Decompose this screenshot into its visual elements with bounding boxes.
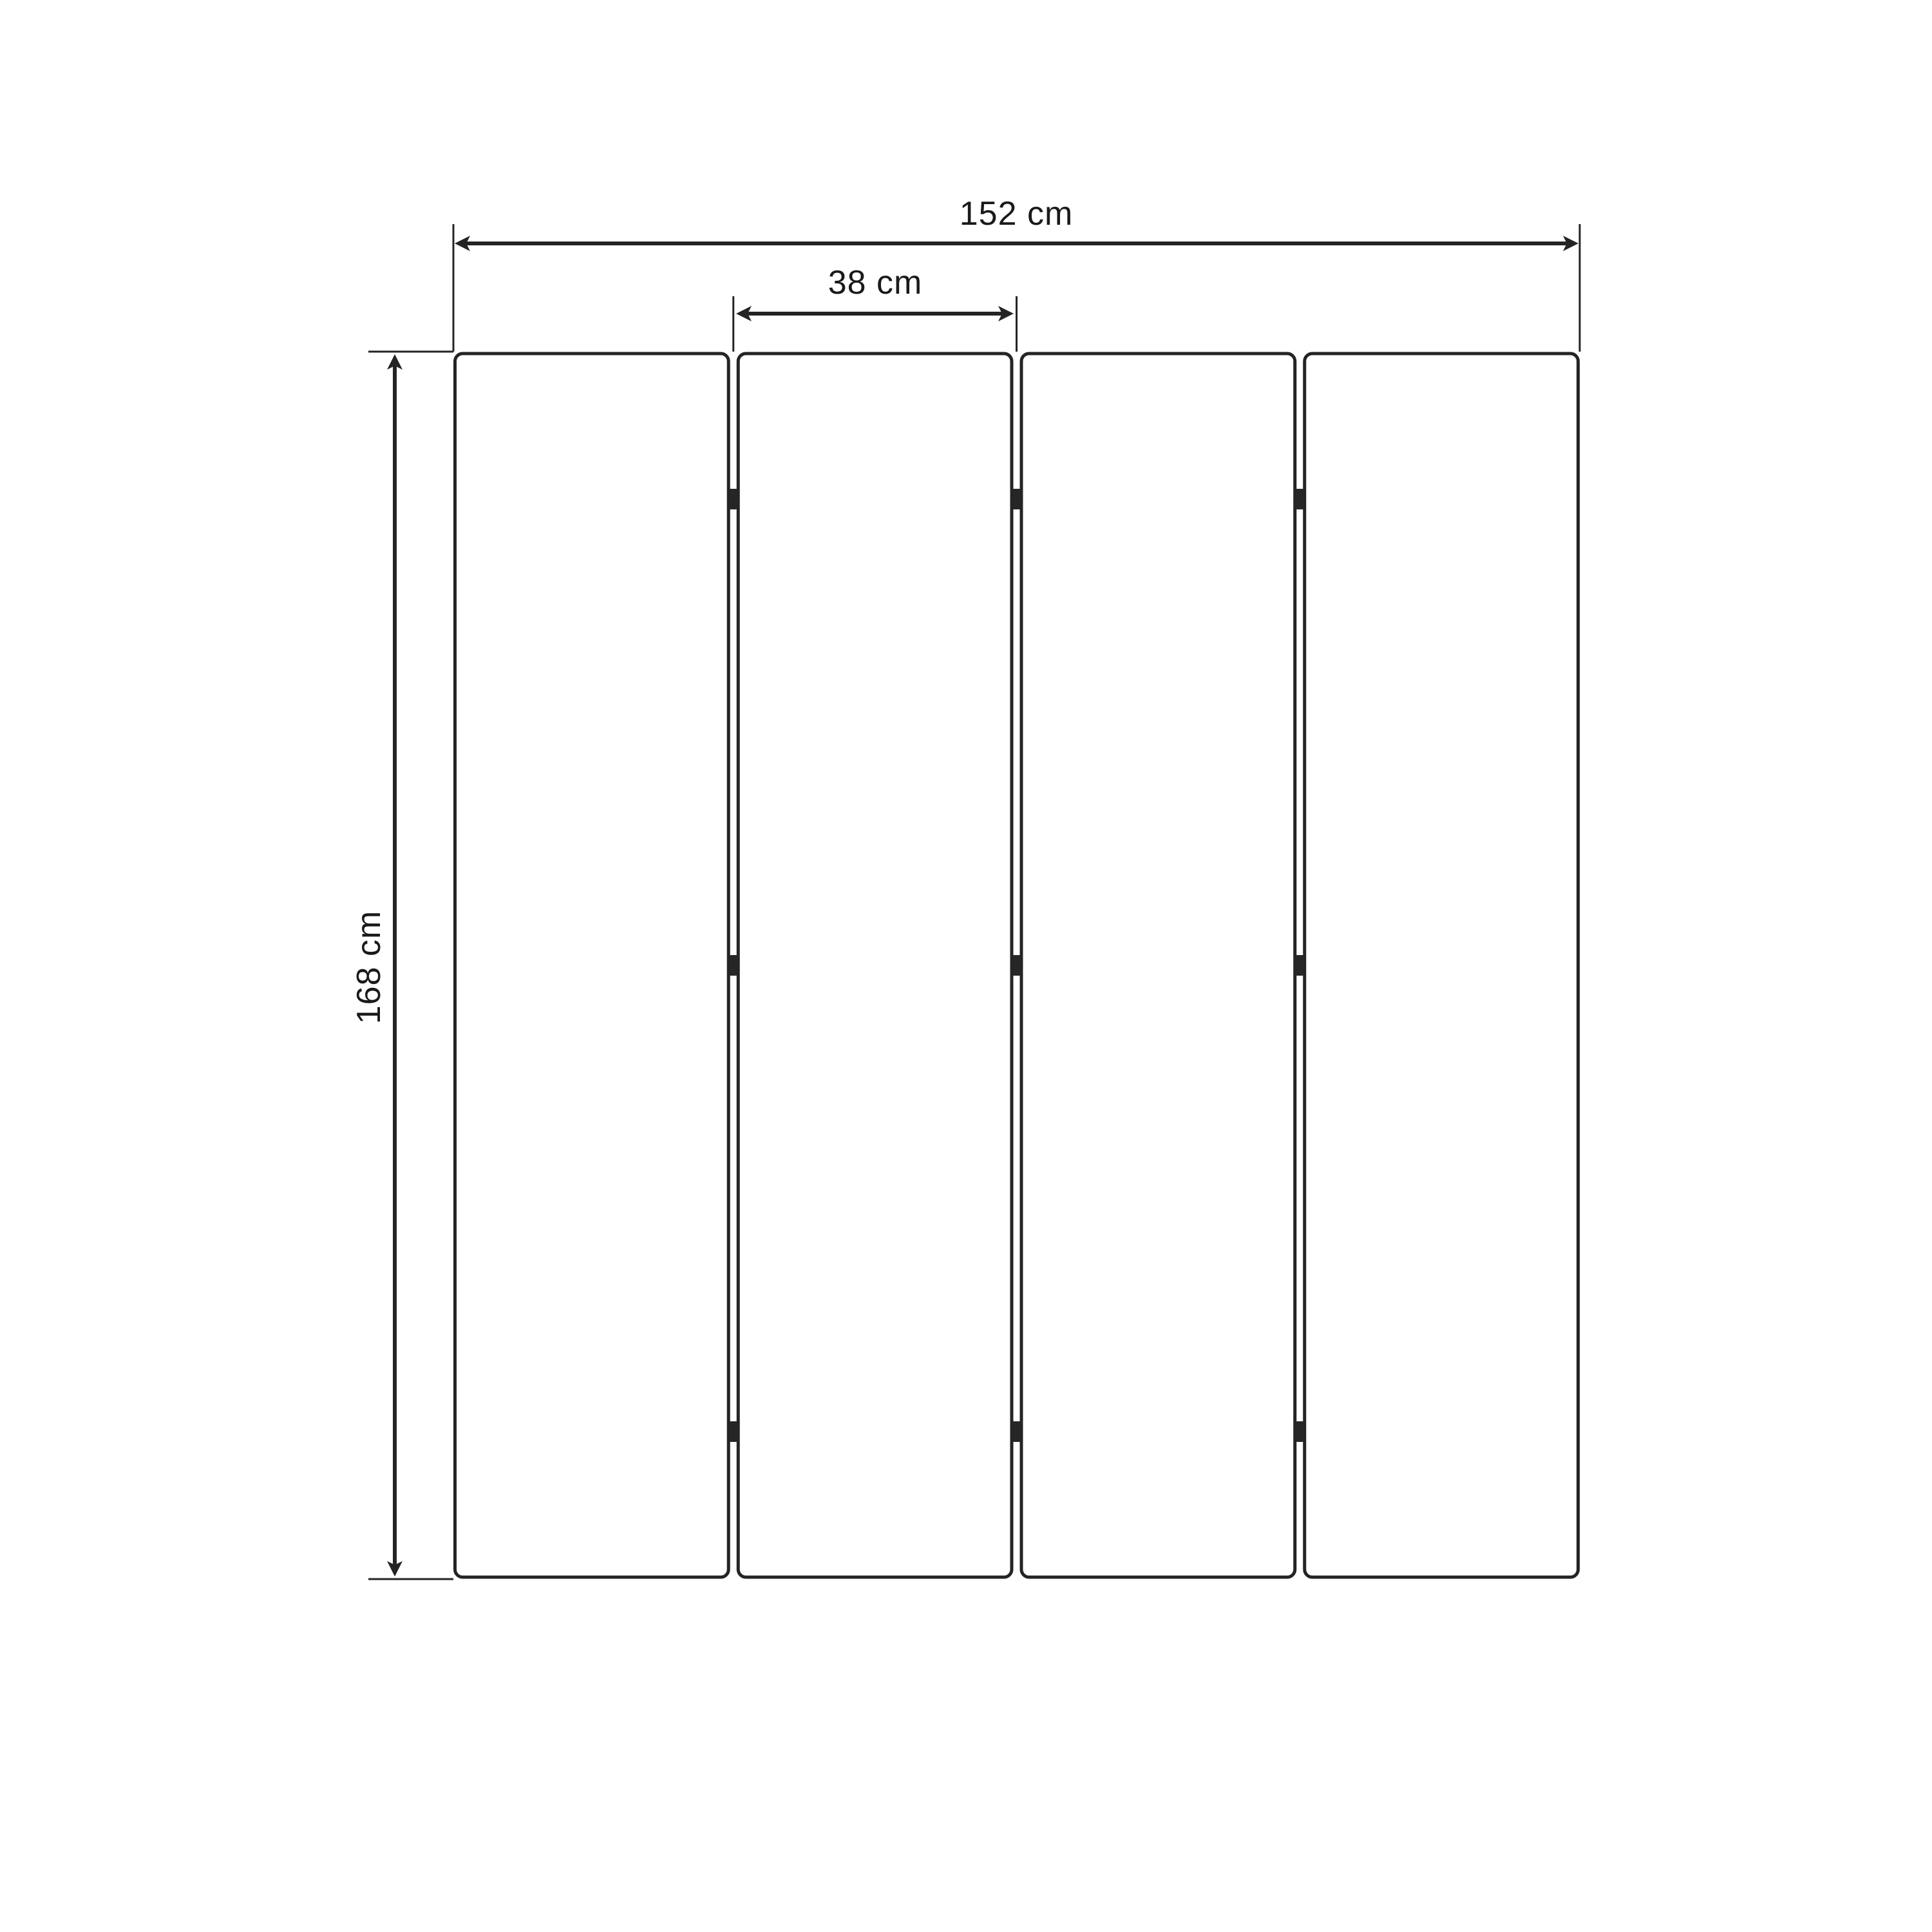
hinge-mark [1296,1421,1303,1442]
hinge-mark [1013,955,1021,976]
panel-1 [455,354,729,1577]
total-width-label: 152 cm [960,195,1074,232]
diagram-svg: 152 cm 38 cm 168 cm [0,0,1932,1932]
panel-3 [1021,354,1295,1577]
hinge-mark [1296,955,1303,976]
hinge-mark [1013,489,1021,509]
hinge-mark [730,489,737,509]
panel-width-label: 38 cm [828,264,923,301]
hinge-mark [1013,1421,1021,1442]
panel-2 [738,354,1012,1577]
hinge-mark [730,1421,737,1442]
hinge-mark [730,955,737,976]
dimension-diagram: 152 cm 38 cm 168 cm [0,0,1932,1932]
height-label: 168 cm [350,911,388,1025]
hinge-mark [1296,489,1303,509]
panel-width-dimension: 38 cm [734,264,1017,352]
panel-4 [1305,354,1578,1577]
height-dimension: 168 cm [350,352,453,1579]
